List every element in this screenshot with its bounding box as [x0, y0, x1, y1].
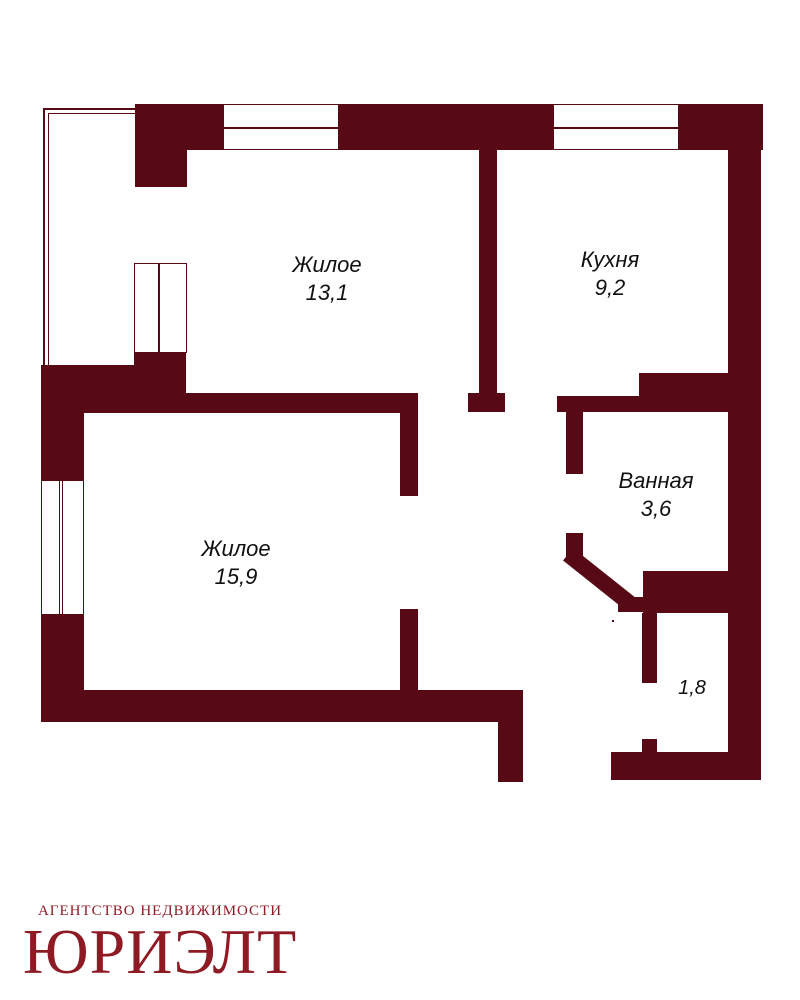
window-living-top-divider [224, 127, 338, 129]
agency-logo: АГЕНТСТВО НЕДВИЖИМОСТИ ЮРИЭЛТ [0, 902, 320, 983]
window-kitchen-top-divider [554, 127, 678, 129]
agency-name: ЮРИЭЛТ [0, 921, 320, 983]
window-kitchen-top [553, 104, 679, 150]
floor-plan: Жилое 13,1 Кухня 9,2 Ванная 3,6 Жилое 15… [0, 0, 800, 1000]
balcony-rail-outer-vertical [43, 108, 45, 365]
wall-partition-living-kitchen [479, 150, 497, 393]
window-living2-left-divider [59, 481, 63, 614]
room-area: 13,1 [247, 279, 407, 307]
room-area: 1,8 [652, 676, 732, 700]
balcony-rail-inner-vertical [48, 113, 50, 365]
window-living2-left [41, 480, 84, 615]
room-area: 15,9 [156, 563, 316, 591]
wall-bathroom-bottom [643, 571, 761, 613]
window-living-top [223, 104, 339, 150]
room-name: Жилое [247, 251, 407, 279]
wall-outer-left-upper [41, 413, 84, 480]
room-area: 9,2 [530, 274, 690, 302]
balcony-rail-outer-horizontal [43, 108, 135, 110]
room-label-living-13-1: Жилое 13,1 [247, 251, 407, 307]
wall-living2-bottom [41, 690, 523, 722]
room-label-bathroom: Ванная 3,6 [576, 467, 736, 523]
wall-living2-right-upper [400, 393, 418, 496]
room-area: 3,6 [576, 495, 736, 523]
window-balcony-living [134, 263, 187, 353]
wall-left-mid-block [41, 365, 186, 413]
wall-living2-top [186, 393, 418, 413]
wall-top-segment-b [339, 104, 553, 150]
wall-kitchen-bottom [557, 396, 639, 412]
room-name: Жилое [156, 535, 316, 563]
wall-kitchen-bathroom-block [639, 373, 732, 412]
wall-partition-end-cap [468, 393, 505, 412]
wall-top-left-corner-block [135, 104, 187, 187]
balcony-rail-inner-horizontal [48, 113, 136, 115]
wall-top-segment-a [187, 104, 223, 150]
wall-closet-left-stub [642, 739, 657, 753]
wall-outer-right [728, 104, 761, 780]
wall-bathroom-left-upper [566, 412, 583, 474]
room-name: Ванная [576, 467, 736, 495]
wall-living2-right-lower [400, 609, 418, 690]
room-label-living-15-9: Жилое 15,9 [156, 535, 316, 591]
room-label-kitchen: Кухня 9,2 [530, 246, 690, 302]
wall-closet-left [642, 613, 657, 683]
wall-hall-bottom-step [498, 722, 523, 782]
room-name: Кухня [530, 246, 690, 274]
stray-dot [612, 620, 614, 622]
room-label-closet: 1,8 [652, 676, 732, 700]
window-balcony-living-divider [158, 264, 160, 352]
wall-closet-bottom [611, 752, 761, 780]
